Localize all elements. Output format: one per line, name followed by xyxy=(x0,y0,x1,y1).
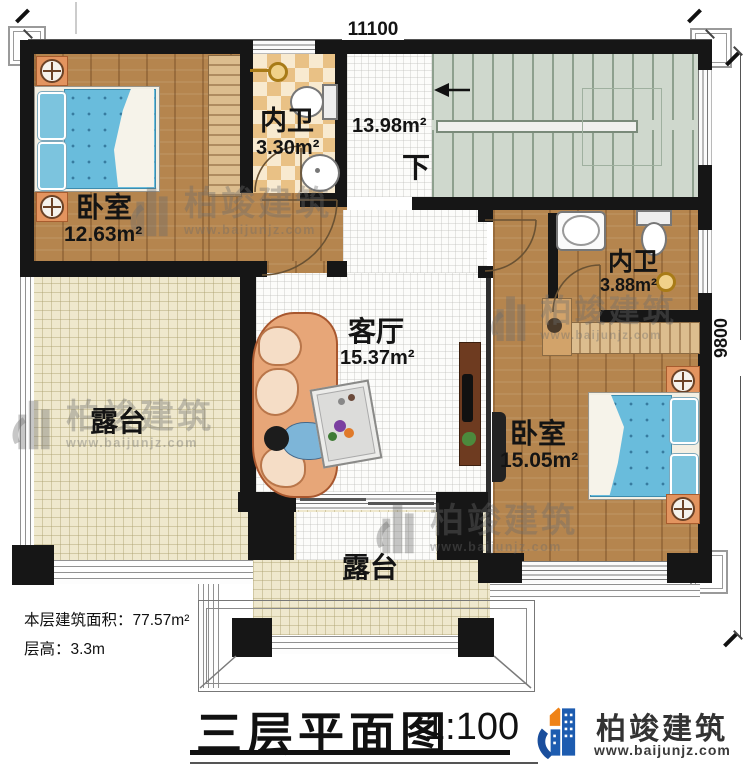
room-label-terrace-left: 露台 xyxy=(90,408,146,436)
pier-left xyxy=(248,512,294,560)
room-area-bedroom1: 12.63m² xyxy=(64,224,142,245)
room-area-bathroom1: 3.30m² xyxy=(256,138,319,158)
wall-living-bottom-b xyxy=(436,492,488,512)
company-logo xyxy=(534,700,590,764)
wall-bathroom1-left xyxy=(240,54,253,193)
room-label-terrace-bottom: 露台 xyxy=(342,554,398,582)
terrace-left-railing xyxy=(20,277,34,563)
floor-height-note: 层高：3.3m xyxy=(24,637,105,659)
dimension-line-right xyxy=(740,376,741,638)
dimension-line-right xyxy=(740,54,741,340)
wall-right-b xyxy=(698,165,712,230)
wall-bedroom2-left-lower xyxy=(478,266,493,278)
stair-landing-outline xyxy=(582,88,662,166)
terrace-railing-bottom-left xyxy=(33,560,253,584)
window-bathroom2-right xyxy=(698,230,712,293)
floor-area-note: 本层建筑面积：77.57m² xyxy=(24,608,189,630)
room-area-living: 15.37m² xyxy=(340,348,415,368)
window-stairwell-right xyxy=(698,70,712,165)
pier-right xyxy=(437,512,483,560)
wall-left xyxy=(20,54,34,277)
wall-bathroom1-bottom xyxy=(300,193,347,207)
plan-scale: 1:100 xyxy=(424,706,519,749)
wall-bedroom2-bottom-b xyxy=(667,553,712,583)
terrace-column-left xyxy=(12,545,54,585)
wardrobe-bedroom1 xyxy=(208,55,242,197)
wall-stairs-bottom xyxy=(412,197,712,210)
window-bathroom1-top xyxy=(253,40,315,54)
lamp-icon xyxy=(671,497,695,521)
table-flowers-icon xyxy=(344,428,354,438)
floor-plan: 柏竣建筑 www.baijunjz.com 柏竣建筑 www.baijunjz.… xyxy=(0,0,750,771)
room-label-bedroom1: 卧室 xyxy=(76,194,132,222)
corner-tick xyxy=(687,9,702,24)
room-label-living: 客厅 xyxy=(348,318,404,346)
wall-bedroom2-left-line xyxy=(486,278,491,563)
wall-bedroom1-bottom xyxy=(20,261,267,277)
toilet-tank xyxy=(322,84,338,120)
wardrobe-bedroom2 xyxy=(558,322,700,354)
room-label-bathroom1: 内卫 xyxy=(260,108,314,135)
tv-icon xyxy=(462,374,473,422)
wall-bathroom2-bottom-b xyxy=(600,310,698,322)
table-cup-icon xyxy=(348,394,355,401)
company-url: www.baijunjz.com xyxy=(594,742,731,758)
room-label-bathroom2: 内卫 xyxy=(608,250,658,275)
dimension-line-top xyxy=(28,39,342,40)
sink-icon xyxy=(300,154,340,192)
room-area-stair-hall: 13.98m² xyxy=(352,116,427,136)
wall-bedroom2-left-upper xyxy=(478,208,493,222)
sofa-cushion xyxy=(258,326,302,366)
wall-bedroom2-bottom-a xyxy=(478,553,524,583)
room-area-bathroom2: 3.88m² xyxy=(600,276,657,294)
wall-right-c xyxy=(698,293,712,577)
window-bedroom2-bottom xyxy=(522,561,667,583)
room-label-bedroom2: 卧室 xyxy=(510,420,566,448)
title-underline-thin xyxy=(190,762,538,764)
stairs-down-label: 下 xyxy=(402,154,430,182)
pillow xyxy=(38,92,66,140)
slider-leaf xyxy=(368,502,434,505)
desk-stool xyxy=(547,318,562,333)
lamp-icon xyxy=(40,195,64,219)
lamp-icon xyxy=(671,369,695,393)
title-underline xyxy=(190,750,510,755)
company-logo-icon xyxy=(534,700,590,764)
wall-right-a xyxy=(698,54,712,70)
person-head xyxy=(264,426,289,451)
sink-basin xyxy=(562,215,600,246)
table-flowers-icon xyxy=(328,432,337,441)
terrace-column-c2 xyxy=(232,618,272,657)
sink-drain xyxy=(315,168,320,173)
wall-stub xyxy=(327,261,347,277)
lamp-icon xyxy=(40,59,64,83)
shower-head-icon xyxy=(268,62,288,82)
slider-leaf xyxy=(300,498,366,501)
dimension-right-label: 9800 xyxy=(712,318,730,358)
shower-head-icon xyxy=(656,272,676,292)
pillow xyxy=(670,398,698,444)
table-cup-icon xyxy=(338,398,345,405)
pillow xyxy=(38,142,66,190)
eave-lines xyxy=(490,584,700,598)
room-area-bedroom2: 15.05m² xyxy=(500,450,578,471)
corner-tick xyxy=(15,9,30,24)
wall-top-left xyxy=(20,40,253,54)
dimension-line-top xyxy=(404,39,712,40)
dimension-top-label: 11100 xyxy=(342,20,404,39)
wall-top-right xyxy=(315,40,712,54)
hall-floor xyxy=(343,210,487,273)
terrace-column-c3 xyxy=(458,618,494,657)
